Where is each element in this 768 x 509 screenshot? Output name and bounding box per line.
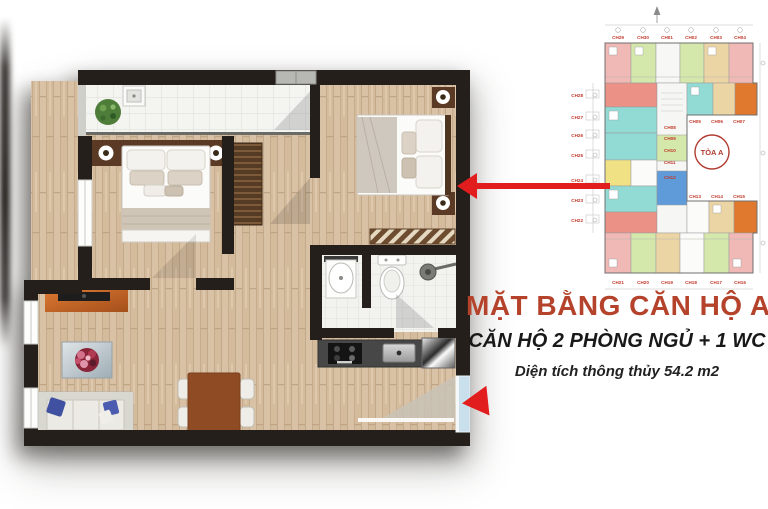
wall-wing-top — [24, 280, 82, 294]
unit-label: CH18 — [685, 280, 697, 285]
balcony-rail — [78, 83, 86, 136]
bed-2 — [357, 115, 451, 195]
left-shadow-strip — [0, 18, 10, 348]
wardrobe — [233, 143, 262, 225]
unit-label: CH14 — [711, 194, 723, 199]
unit-label: CH12 — [664, 175, 676, 180]
kitchen — [318, 338, 455, 368]
wall-bedroom1-living — [78, 278, 150, 290]
unit-label: CH03 — [710, 35, 722, 40]
cooktop — [328, 343, 362, 364]
page: TÒA A CH29 CH30 CH01 CH02 CH03 CH04 CH28… — [0, 0, 768, 509]
unit-label: CH21 — [612, 280, 624, 285]
wall-bedroom1-right — [222, 136, 234, 254]
north-arrow-icon — [654, 6, 661, 23]
unit-label: CH22 — [571, 218, 583, 223]
unit-label: CH26 — [571, 133, 583, 138]
unit-label: CH30 — [637, 35, 649, 40]
unit-label: CH27 — [571, 115, 583, 120]
building-overview-plan: TÒA A CH29 CH30 CH01 CH02 CH03 CH04 CH28… — [557, 3, 768, 295]
unit-label: CH17 — [710, 280, 722, 285]
unit-label: CH10 — [664, 148, 676, 153]
tower-label-text: TÒA A — [701, 148, 724, 157]
bed-1 — [122, 146, 210, 242]
unit-label: CH20 — [637, 280, 649, 285]
plan-area-note: Diện tích thông thủy 54.2 m2 — [466, 363, 768, 380]
wall-bedroom2-left — [310, 85, 320, 178]
apartment-floorplan — [18, 66, 470, 448]
chair — [240, 407, 254, 427]
balcony-door-track — [86, 132, 310, 135]
wall-bottom — [24, 430, 470, 446]
unit-label: CH09 — [664, 136, 676, 141]
wall-bath-left — [310, 245, 322, 340]
unit-label: CH11 — [664, 160, 676, 165]
toilet — [378, 255, 406, 299]
chair — [240, 379, 254, 399]
unit-label: CH16 — [734, 280, 746, 285]
unit-label: CH04 — [734, 35, 746, 40]
unit-label: CH06 — [711, 119, 723, 124]
unit-label: CH15 — [733, 194, 745, 199]
coffee-table — [62, 342, 112, 378]
fridge — [422, 338, 455, 368]
unit-label: CH13 — [689, 194, 701, 199]
plant — [95, 99, 121, 125]
rug — [370, 229, 455, 244]
locator-arrow-line — [476, 183, 610, 189]
wall-bath-bottom — [310, 328, 394, 338]
unit-label: CH23 — [571, 198, 583, 203]
partition-wall — [362, 253, 371, 308]
tower-label: TÒA A — [695, 135, 729, 169]
plan-title: MẶT BẰNG CĂN HỘ A5 — [466, 290, 768, 322]
unit-label: CH01 — [661, 35, 673, 40]
unit-label: CH28 — [571, 93, 583, 98]
balcony-arrow-head — [461, 386, 490, 419]
plan-subtitle: CĂN HỘ 2 PHÒNG NGỦ + 1 WC — [466, 330, 768, 353]
wall-top — [78, 70, 470, 85]
unit-label: CH02 — [685, 35, 697, 40]
dimension-boxes — [586, 90, 599, 223]
unit-label: CH08 — [664, 125, 676, 130]
unit-label: CH19 — [661, 280, 673, 285]
wall-bedroom2-bottom — [310, 245, 456, 255]
unit-label: CH07 — [733, 119, 745, 124]
caption-block: MẶT BẰNG CĂN HỘ A5 CĂN HỘ 2 PHÒNG NGỦ + … — [466, 290, 768, 380]
locator-arrow-head — [457, 173, 477, 199]
building-units — [605, 43, 757, 273]
sofa — [38, 392, 133, 432]
unit-label: CH29 — [612, 35, 624, 40]
unit-label: CH05 — [689, 119, 701, 124]
unit-label: CH25 — [571, 153, 583, 158]
dining-table — [188, 373, 240, 432]
